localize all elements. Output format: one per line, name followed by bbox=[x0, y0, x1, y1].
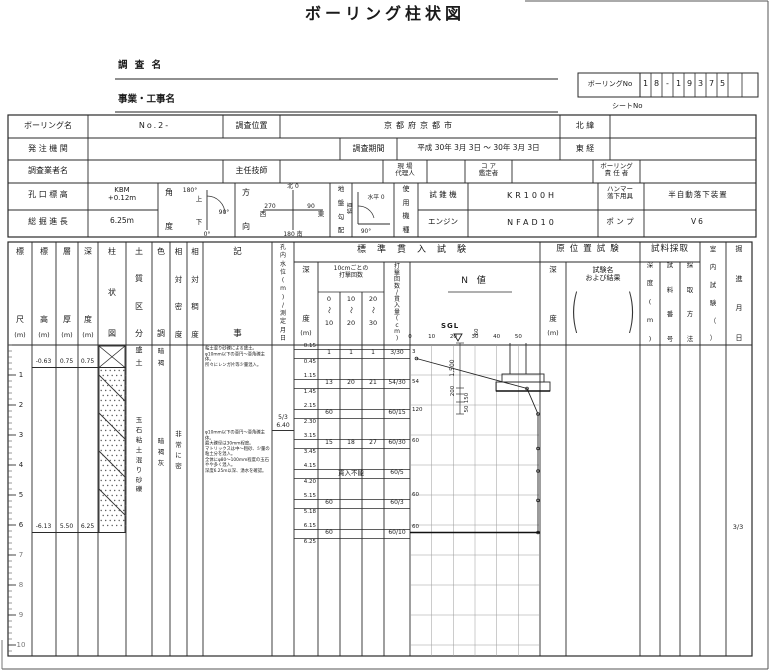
water-level-date: 5/3 bbox=[272, 415, 294, 422]
boring-name-value: No.2- bbox=[88, 121, 221, 130]
pump-value: V6 bbox=[646, 218, 750, 227]
col-spt-depth: 深度 bbox=[294, 266, 318, 322]
scale-number: 8 bbox=[14, 581, 28, 589]
tilde-icon: 〜 bbox=[325, 299, 333, 321]
col-sample-method: 採取方法 bbox=[680, 262, 700, 342]
drill-machine-value: KR100H bbox=[468, 191, 596, 200]
spt-depth-bottom: 3.45 bbox=[294, 449, 316, 455]
project-name-label: 事業・工事名 bbox=[118, 95, 175, 106]
layer-soil-label: 玉石粘土混り砂礫 bbox=[126, 417, 152, 493]
col-insitu-depth: 深度 bbox=[540, 266, 566, 322]
scale-number: 1 bbox=[14, 371, 28, 379]
col-density: 相対密度 bbox=[170, 248, 187, 338]
insitu-paren-open: ( bbox=[570, 288, 579, 334]
n-value-label: 60 bbox=[412, 524, 432, 530]
scale-number: 5 bbox=[14, 491, 28, 499]
boring-no-label: ボーリングNo bbox=[580, 80, 640, 88]
n-axis-tick: 50 bbox=[510, 334, 526, 340]
spt-depth-top: 5.15 bbox=[294, 493, 316, 499]
spt-depth-top: 2.15 bbox=[294, 403, 316, 409]
sample-group-header: 試料採取 bbox=[640, 245, 700, 255]
spt-depth-bottom: 0.45 bbox=[294, 359, 316, 365]
spt-blow-count: 15 bbox=[318, 440, 340, 447]
spt-blow-count: 60 bbox=[318, 530, 340, 537]
location-value: 京都府京都市 bbox=[282, 121, 558, 130]
layer-remarks: 粘土混り砂礫による盛土。 φ10mm以下の亜円〜亜角礫主体。 所々にレンガ片等少… bbox=[205, 346, 273, 368]
n-value-label: 60 bbox=[412, 438, 432, 444]
spt-result-fraction: 54/30 bbox=[384, 380, 410, 387]
col-scale-unit: (m) bbox=[8, 332, 32, 339]
col-lab-test: 室内試験（） bbox=[700, 246, 726, 342]
layer-soil-label: 盛土 bbox=[126, 347, 152, 367]
col-depth: 深度 bbox=[78, 248, 98, 324]
scale-number: 9 bbox=[14, 611, 28, 619]
blow-range-bottom: 10 bbox=[318, 320, 340, 327]
col-scale: 標尺 bbox=[8, 248, 32, 324]
layer-color-label: 暗褐 bbox=[152, 348, 170, 367]
pump-label: ポ ン プ bbox=[598, 218, 642, 227]
sgl-label: SGL bbox=[441, 322, 459, 330]
spt-blow-count: 1 bbox=[340, 350, 362, 357]
spt-blow-count: 1 bbox=[362, 350, 384, 357]
spt-result-fraction: 60/10 bbox=[384, 530, 410, 537]
col-strata: 柱状図 bbox=[98, 248, 126, 338]
total-depth-value: 6.25m bbox=[88, 217, 156, 226]
spt-result-fraction: 60/15 bbox=[384, 410, 410, 417]
spt-blow-count: 1 bbox=[318, 350, 340, 357]
ground-slope-label: 地盤勾配 bbox=[330, 186, 352, 234]
tilde-icon: 〜 bbox=[347, 299, 355, 321]
n-value-header: N 値 bbox=[440, 276, 510, 286]
hole-elevation-value: KBM +0.12m bbox=[88, 186, 156, 202]
direction-label: 方向 bbox=[235, 189, 257, 231]
col-spt-depth-unit: (m) bbox=[294, 330, 318, 337]
insitu-paren-close: ) bbox=[626, 288, 635, 334]
spt-note: 貫入不能 bbox=[318, 470, 384, 477]
layer-elevation: -0.63 bbox=[32, 359, 55, 366]
n-axis-tick: 10 bbox=[424, 334, 440, 340]
spt-group-header: 標準貫入試験 bbox=[294, 245, 540, 255]
boring-responsible-label: ボーリング 責 任 者 bbox=[595, 163, 638, 178]
spt-blow-count: 18 bbox=[340, 440, 362, 447]
sheet-no-label: シートNo bbox=[612, 102, 643, 110]
svg-text:90: 90 bbox=[307, 203, 315, 210]
drill-date-value: 3/3 bbox=[726, 524, 750, 531]
boring-no-cell: 1 bbox=[640, 79, 651, 88]
spt-depth-bottom: 2.30 bbox=[294, 419, 316, 425]
angle-label: 角度 bbox=[158, 189, 180, 231]
n-axis-tick: 20 bbox=[445, 334, 461, 340]
spt-blow-count: 27 bbox=[362, 440, 384, 447]
svg-text:北 0: 北 0 bbox=[287, 182, 299, 190]
svg-text:50: 50 bbox=[464, 405, 470, 412]
svg-text:西: 西 bbox=[260, 210, 267, 218]
boring-no-cell: 8 bbox=[651, 79, 662, 88]
spt-result-fraction: 60/3 bbox=[384, 500, 410, 507]
period-label: 調査期間 bbox=[342, 144, 395, 153]
layer-color-label: 暗褐灰 bbox=[152, 438, 170, 467]
water-level-value: 6.40 bbox=[272, 423, 294, 431]
layer-depth: 0.75 bbox=[78, 359, 97, 366]
svg-text:上: 上 bbox=[196, 194, 203, 203]
svg-text:270: 270 bbox=[264, 203, 276, 210]
scale-number: 10 bbox=[14, 641, 28, 649]
engine-label: エンジン bbox=[420, 218, 466, 227]
layer-depth: 6.25 bbox=[78, 524, 97, 531]
spt-blow-count: 60 bbox=[318, 410, 340, 417]
engine-value: NFAD10 bbox=[468, 218, 596, 227]
hammer-label: ハンマー 落下用具 bbox=[598, 186, 642, 201]
machine-used-label: 使用機種 bbox=[394, 186, 418, 234]
period-value: 平成 30年 3月 3日 〜 30年 3月 3日 bbox=[399, 144, 558, 153]
survey-name-label: 調 査 名 bbox=[118, 61, 163, 72]
spt-depth-bottom: 5.18 bbox=[294, 509, 316, 515]
boring-name-label: ボーリング名 bbox=[10, 121, 86, 130]
boring-no-cell: 3 bbox=[695, 79, 706, 88]
location-label: 調査位置 bbox=[225, 121, 278, 130]
n-value-label: 54 bbox=[412, 379, 432, 385]
layer-remarks: φ10mm以下の亜円〜亜角礫主体。 最大礫径は30mm程度。 マトリックスは中〜… bbox=[205, 430, 273, 473]
tilde-icon: 〜 bbox=[369, 299, 377, 321]
page-title: ボーリング柱状図 bbox=[285, 5, 485, 23]
spt-blow-count: 21 bbox=[362, 380, 384, 387]
n-axis-tick: 0 bbox=[402, 334, 418, 340]
boring-no-cell: 5 bbox=[717, 79, 728, 88]
spt-depth-bottom: 6.25 bbox=[294, 539, 316, 545]
east-longitude-label: 東 経 bbox=[562, 144, 608, 153]
svg-text:150: 150 bbox=[464, 392, 470, 403]
svg-text:東: 東 bbox=[318, 209, 325, 218]
boring-no-cell: - bbox=[662, 79, 673, 88]
col-sample-depth: 深度(m) bbox=[640, 262, 660, 342]
svg-text:90°: 90° bbox=[361, 229, 371, 235]
hammer-value: 半自動落下装置 bbox=[646, 191, 750, 200]
layer-elevation: -6.13 bbox=[32, 524, 55, 531]
spt-result-fraction: 60/30 bbox=[384, 440, 410, 447]
svg-text:1,500: 1,500 bbox=[449, 359, 456, 376]
site-agent-label: 現 場 代理人 bbox=[385, 163, 425, 178]
svg-text:0°: 0° bbox=[204, 231, 211, 238]
svg-text:90°: 90° bbox=[219, 209, 230, 216]
boring-no-cell: 7 bbox=[706, 79, 717, 88]
north-latitude-label: 北 緯 bbox=[562, 121, 608, 130]
agency-label: 調査業者名 bbox=[10, 166, 86, 175]
col-blow-fraction: 打撃回数/貫入量(cm) bbox=[384, 264, 410, 342]
svg-text:下: 下 bbox=[196, 218, 203, 226]
layer-thickness: 5.50 bbox=[56, 524, 77, 531]
svg-text:180°: 180° bbox=[183, 187, 197, 194]
n-axis-tick: 30 bbox=[467, 334, 483, 340]
scale-number: 3 bbox=[14, 431, 28, 439]
spt-depth-top: 1.15 bbox=[294, 373, 316, 379]
col-thickness: 層厚 bbox=[56, 248, 78, 324]
spt-blow-count: 60 bbox=[318, 500, 340, 507]
scale-number: 6 bbox=[14, 521, 28, 529]
col-insitu-depth-unit: (m) bbox=[540, 330, 566, 337]
scale-number: 2 bbox=[14, 401, 28, 409]
col-elevation: 標高 bbox=[32, 248, 56, 324]
insitu-group-header: 原位置試験 bbox=[540, 245, 640, 255]
spt-depth-bottom: 4.20 bbox=[294, 479, 316, 485]
col-color: 色調 bbox=[152, 248, 170, 338]
svg-text:200: 200 bbox=[450, 385, 456, 396]
spt-depth-top: 0.15 bbox=[294, 343, 316, 349]
col-elevation-unit: (m) bbox=[32, 332, 56, 339]
n-value-label: 120 bbox=[412, 407, 432, 413]
spt-depth-top: 6.15 bbox=[294, 523, 316, 529]
col-depth-unit: (m) bbox=[78, 332, 98, 339]
n-value-label: 3 bbox=[412, 349, 432, 355]
spt-result-fraction: 3/30 bbox=[384, 350, 410, 357]
col-water-level: 孔内水位(m)/測定月日 bbox=[272, 245, 294, 342]
total-depth-label: 総 掘 進 長 bbox=[10, 217, 86, 226]
col-consistency: 相対稠度 bbox=[187, 248, 203, 338]
layer-thickness: 0.75 bbox=[56, 359, 77, 366]
spt-blow-count: 13 bbox=[318, 380, 340, 387]
spt-depth-top: 4.15 bbox=[294, 463, 316, 469]
blow-range-bottom: 30 bbox=[362, 320, 384, 327]
col-insitu-name: 試験名 および結果 bbox=[566, 266, 640, 282]
chief-engineer-label: 主任技師 bbox=[225, 166, 278, 175]
n-axis-tick: 40 bbox=[489, 334, 505, 340]
scale-number: 7 bbox=[14, 551, 28, 559]
boring-no-cell: 1 bbox=[673, 79, 684, 88]
boring-log-sheet: 180°上90°下0°北 090東180 南270西水平 0鉛直90°601,5… bbox=[0, 0, 770, 671]
client-label: 発 注 機 関 bbox=[10, 144, 86, 153]
spt-blow-count: 20 bbox=[340, 380, 362, 387]
spt-result-fraction: 60/5 bbox=[384, 470, 410, 477]
col-blows-per-10cm: 10cmごとの 打撃回数 bbox=[318, 266, 384, 280]
blow-range-bottom: 20 bbox=[340, 320, 362, 327]
n-value-label: 60 bbox=[412, 492, 432, 498]
scale-number: 4 bbox=[14, 461, 28, 469]
layer-density-label: 非常に密 bbox=[170, 431, 187, 469]
col-remarks: 記事 bbox=[203, 248, 272, 338]
col-soil: 土質区分 bbox=[126, 248, 152, 338]
svg-text:180 南: 180 南 bbox=[283, 230, 302, 238]
boring-no-cell: 9 bbox=[684, 79, 695, 88]
svg-text:水平 0: 水平 0 bbox=[367, 193, 384, 201]
col-thickness-unit: (m) bbox=[56, 332, 78, 339]
spt-depth-top: 3.15 bbox=[294, 433, 316, 439]
core-examiner-label: コ ア 鑑定者 bbox=[467, 163, 510, 178]
spt-depth-bottom: 1.45 bbox=[294, 389, 316, 395]
n-value-line bbox=[417, 359, 539, 533]
hole-elevation-label: 孔 口 標 高 bbox=[10, 190, 86, 199]
drill-machine-label: 試 錐 機 bbox=[420, 191, 466, 200]
col-sample-no: 試料番号 bbox=[660, 262, 680, 342]
col-drill-date: 掘進月日 bbox=[726, 246, 752, 342]
